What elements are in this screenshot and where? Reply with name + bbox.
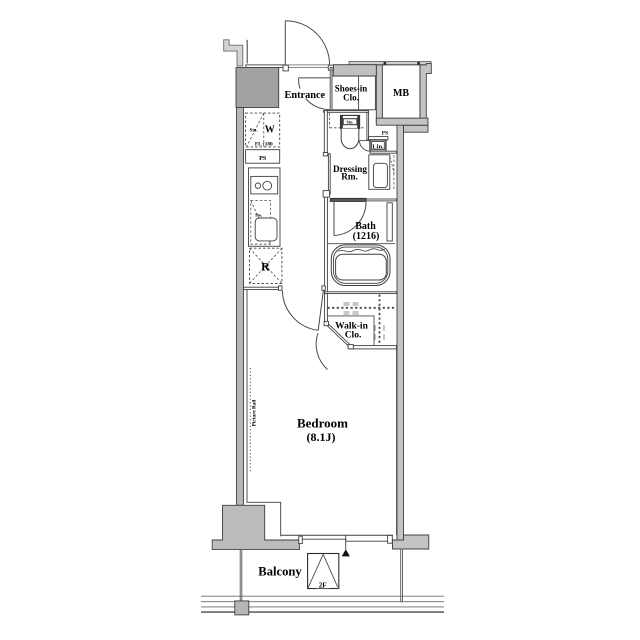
svg-text:PS: PS [382, 130, 388, 136]
svg-text:Rm.: Rm. [341, 171, 358, 181]
svg-text:R: R [261, 260, 270, 274]
svg-text:Clo.: Clo. [345, 331, 362, 341]
svg-text:Lin.: Lin. [372, 143, 384, 150]
svg-text:W: W [265, 124, 275, 135]
svg-text:Sto.: Sto. [346, 120, 353, 125]
svg-text:Balcony: Balcony [258, 565, 302, 579]
svg-text:FL+180: FL+180 [255, 141, 273, 147]
svg-text:Sto.: Sto. [250, 129, 258, 134]
svg-text:Picture Rail: Picture Rail [252, 399, 258, 426]
svg-text:(1216): (1216) [353, 231, 380, 242]
svg-text:Bedroom: Bedroom [297, 416, 348, 431]
svg-text:2F: 2F [319, 582, 327, 590]
svg-text:Sto.: Sto. [255, 213, 262, 218]
svg-text:Clo.: Clo. [343, 93, 359, 103]
svg-text:(8.1J): (8.1J) [307, 430, 336, 444]
svg-text:PS: PS [259, 155, 267, 162]
svg-text:MB: MB [393, 88, 409, 99]
svg-text:Entrance: Entrance [284, 90, 325, 101]
